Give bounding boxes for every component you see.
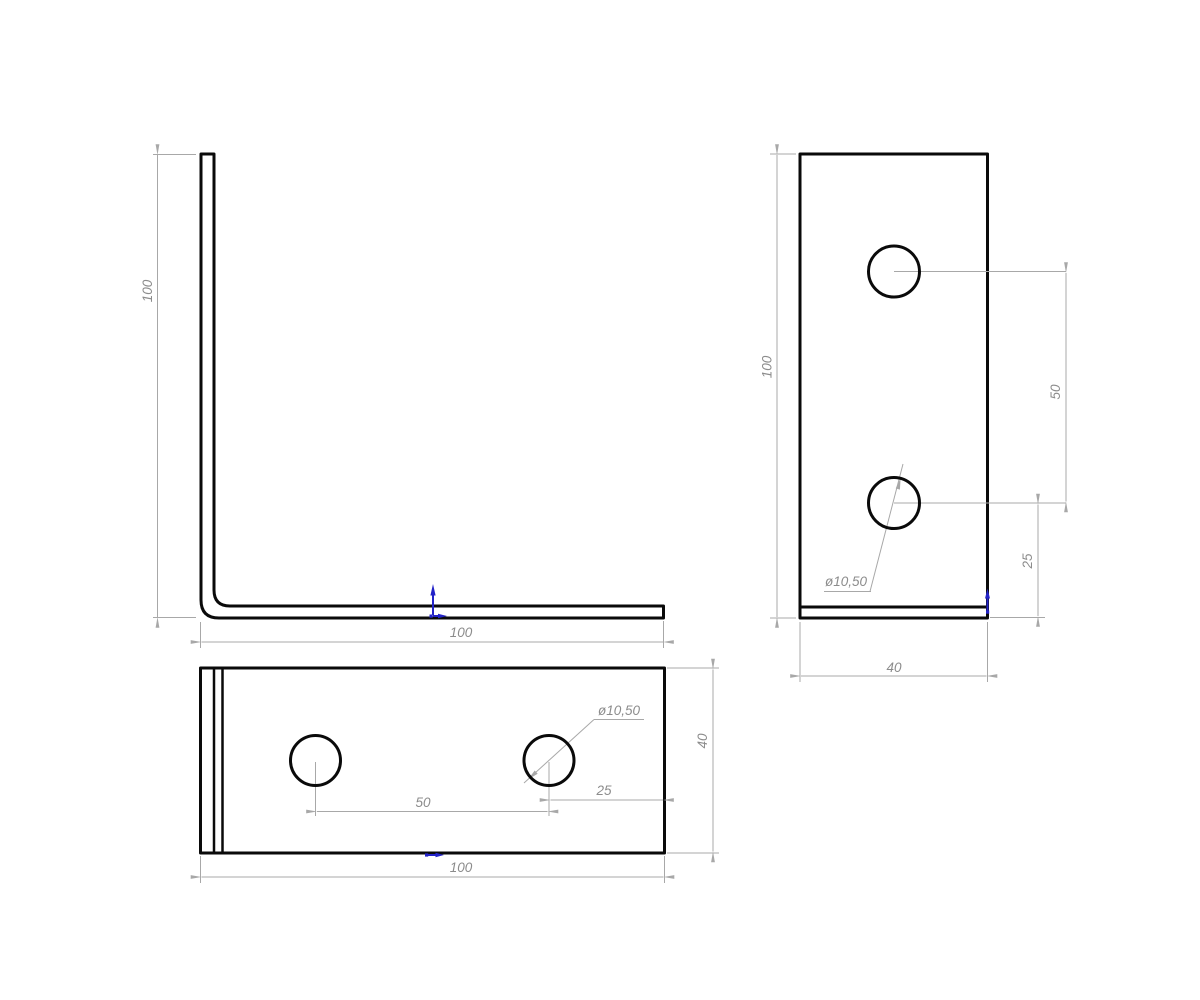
plan-dim-depth: 40 [667,668,719,853]
side-view: 100 100 [140,154,664,648]
front-dim-height: 100 [760,154,797,618]
side-dim-width: 100 [201,621,664,648]
dimension-label: 40 [886,660,902,675]
front-dim-hole-spacing: 50 [1048,273,1066,502]
front-plate-outline [800,154,988,618]
side-dim-height: 100 [140,155,196,618]
plan-dim-width: 100 [201,856,665,883]
hole-diameter-label: ø10,50 [825,574,868,589]
dimension-label: 100 [140,279,155,302]
front-dim-hole-edge: 25 [990,505,1045,618]
dimension-label: 25 [1020,553,1035,570]
dimension-label: 50 [415,795,431,810]
front-dim-width: 40 [800,622,988,682]
dimension-label: 100 [450,625,473,640]
hole-diameter-label: ø10,50 [598,703,641,718]
dimension-label: 100 [450,860,473,875]
plan-view: ø10,50 50 25 40 100 [201,668,720,883]
technical-drawing: 100 100 ø10,50 [0,0,1200,1000]
dimension-label: 25 [595,783,612,798]
dimension-label: 50 [1048,384,1063,400]
drawing-canvas: 100 100 ø10,50 [0,0,1200,1000]
front-view: ø10,50 100 50 25 40 [760,154,1067,682]
plan-plate-outline [201,668,665,853]
dimension-label: 40 [695,733,710,749]
l-profile-outline [201,154,664,618]
dimension-label: 100 [760,355,775,378]
